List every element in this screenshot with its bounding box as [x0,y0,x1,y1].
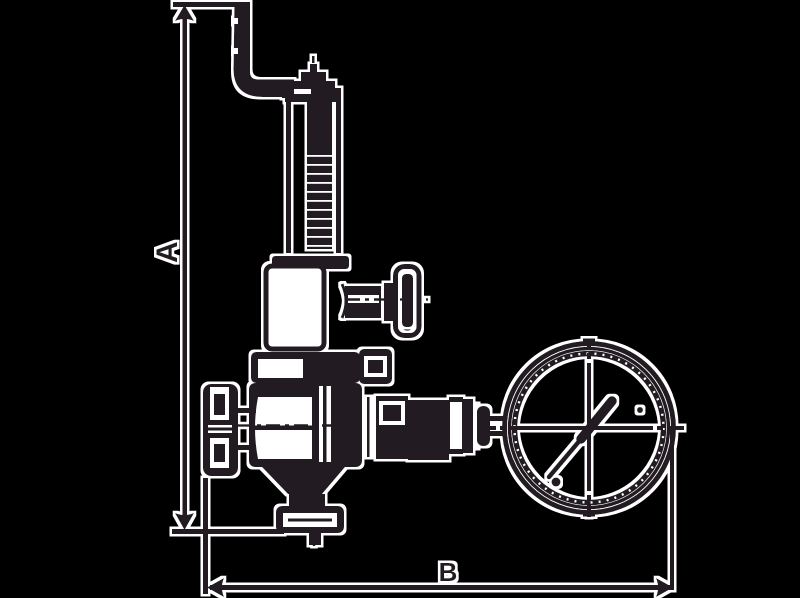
svg-text:A: A [151,241,184,263]
svg-text:B: B [439,557,458,587]
